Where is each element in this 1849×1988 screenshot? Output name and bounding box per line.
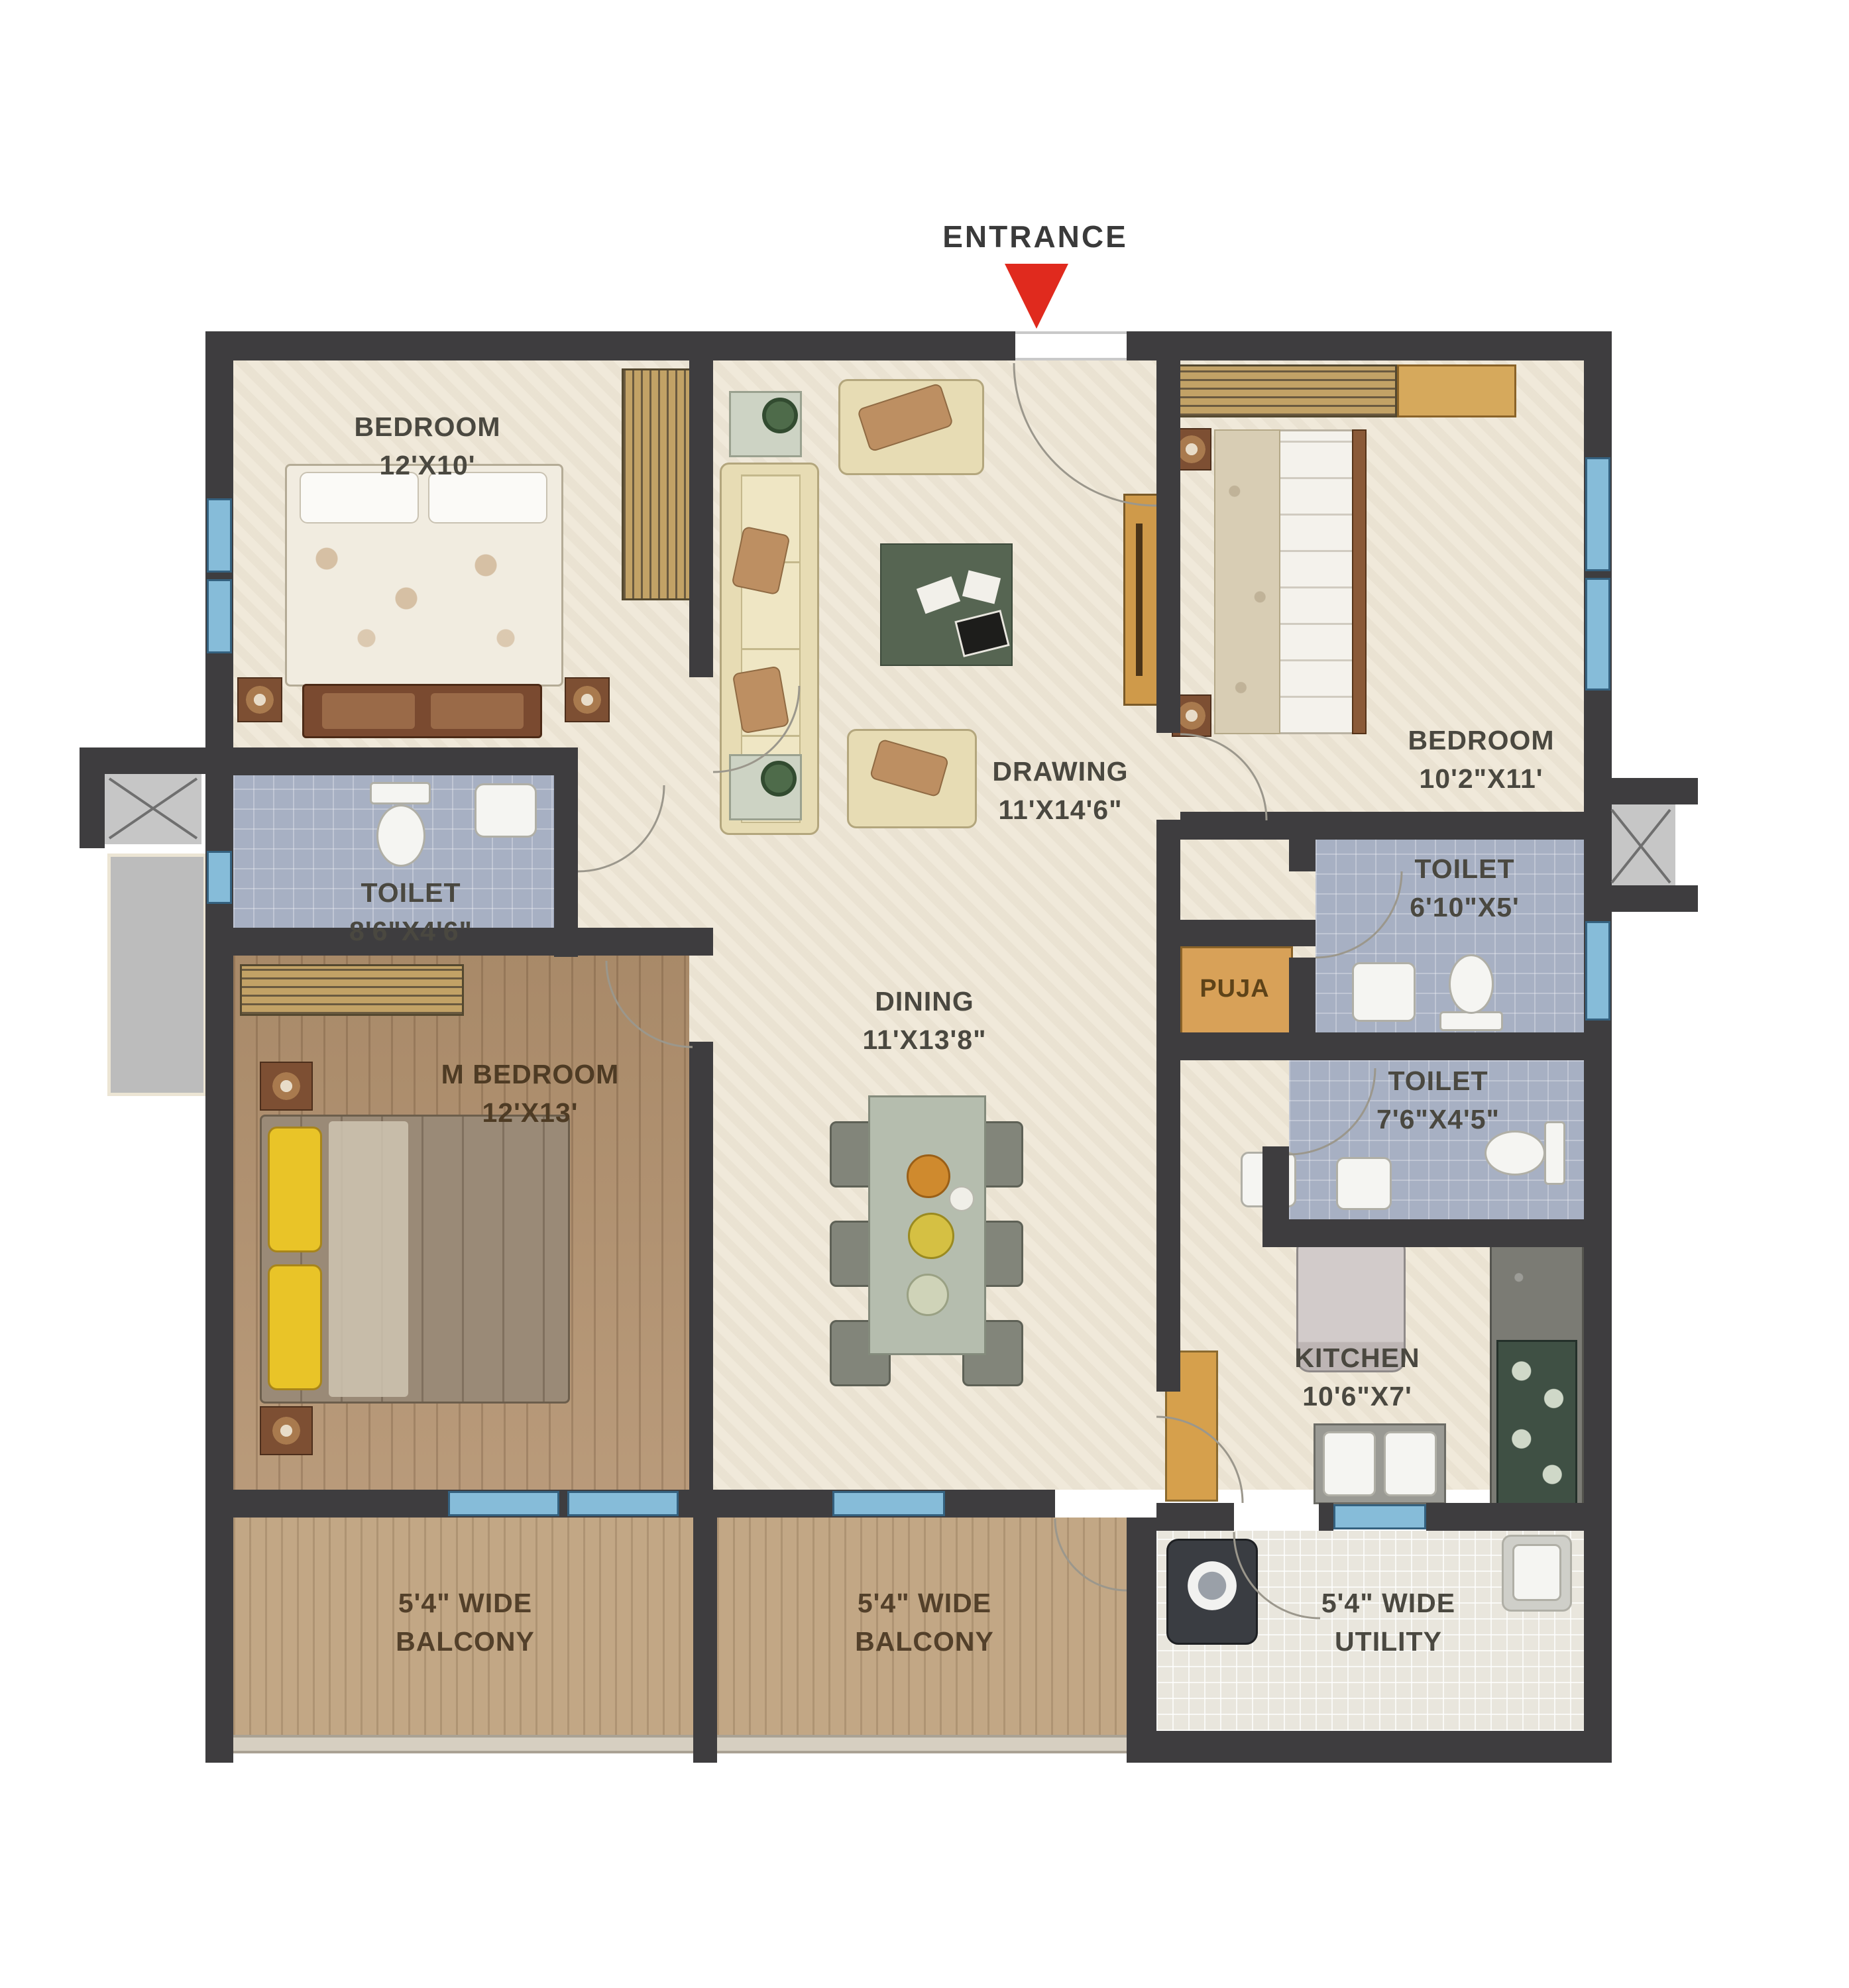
room-name: M BEDROOM [441,1055,620,1093]
room-label-bedroom-2: BEDROOM 10'2"X11' [1408,721,1554,798]
room-name: TOILET [1410,850,1520,888]
room-name: TOILET [349,873,473,912]
room-name: DRAWING [992,752,1128,791]
entrance-label: ENTRANCE [942,219,1128,254]
room-label-dining: DINING 11'X13'8" [862,982,986,1059]
room-label-puja: PUJA [1200,971,1269,1007]
room-dims: 10'2"X11' [1408,759,1554,798]
floor-plan: ENTRANCE BEDROOM 12'X10' DRAWING 11'X14'… [0,0,1849,1988]
room-dims: BALCONY [396,1622,535,1661]
room-name: 5'4" WIDE [855,1584,994,1622]
room-label-toilet-3: TOILET 7'6"X4'5" [1376,1062,1500,1138]
room-dims: 11'X13'8" [862,1021,986,1059]
room-label-toilet-1: TOILET 8'6"X4'6" [349,873,473,950]
room-name: BEDROOM [354,408,500,446]
room-dims: 12'X13' [441,1093,620,1132]
room-label-drawing: DRAWING 11'X14'6" [992,752,1128,829]
room-label-utility: 5'4" WIDE UTILITY [1321,1584,1455,1661]
room-label-bedroom-1: BEDROOM 12'X10' [354,408,500,484]
room-name: BEDROOM [1408,721,1554,759]
room-dims: BALCONY [855,1622,994,1661]
entrance-arrow-icon [1005,264,1068,329]
room-name: TOILET [1376,1062,1500,1100]
room-name: PUJA [1200,971,1269,1007]
room-label-balcony-2: 5'4" WIDE BALCONY [855,1584,994,1661]
room-dims: 11'X14'6" [992,791,1128,829]
room-name: 5'4" WIDE [1321,1584,1455,1622]
room-name: 5'4" WIDE [396,1584,535,1622]
room-label-toilet-2: TOILET 6'10"X5' [1410,850,1520,926]
room-name: KITCHEN [1294,1339,1420,1377]
room-label-balcony-1: 5'4" WIDE BALCONY [396,1584,535,1661]
room-name: DINING [862,982,986,1021]
room-dims: 8'6"X4'6" [349,912,473,950]
room-dims: UTILITY [1321,1622,1455,1661]
room-label-kitchen: KITCHEN 10'6"X7' [1294,1339,1420,1415]
room-dims: 7'6"X4'5" [1376,1100,1500,1138]
room-dims: 10'6"X7' [1294,1377,1420,1415]
room-dims: 12'X10' [354,446,500,484]
room-dims: 6'10"X5' [1410,888,1520,926]
room-label-m-bedroom: M BEDROOM 12'X13' [441,1055,620,1132]
